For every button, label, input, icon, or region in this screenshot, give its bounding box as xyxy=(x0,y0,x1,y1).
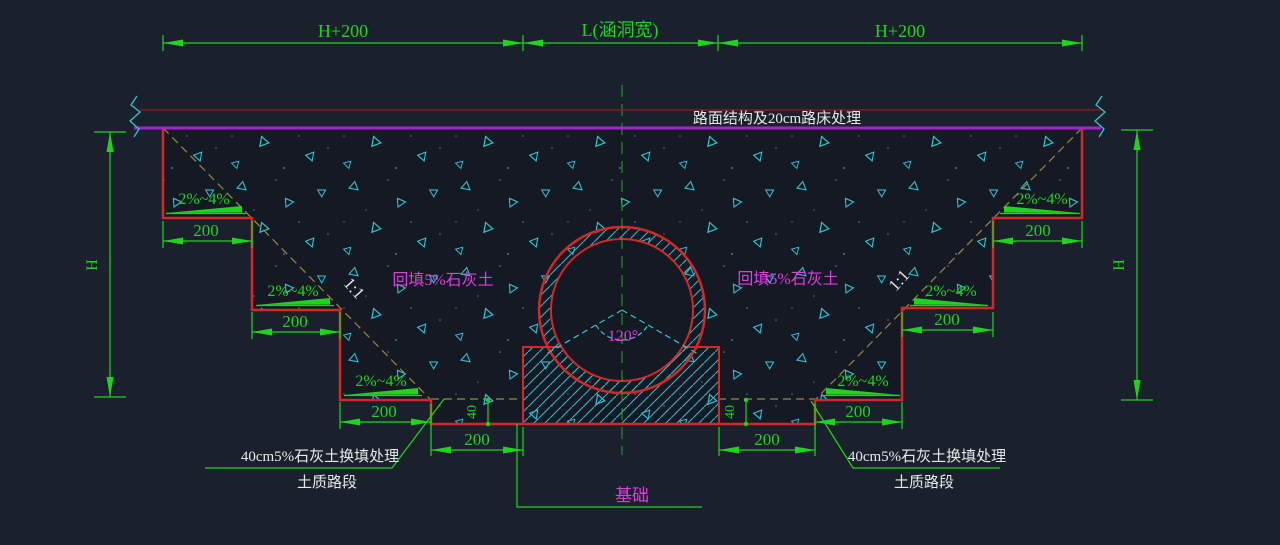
step-dim-right-1: 200 xyxy=(1025,221,1051,240)
step-dim-left-3: 200 xyxy=(371,402,397,421)
slope-grade-right-1: 2%~4% xyxy=(1016,191,1067,208)
height-dim-left-label: H xyxy=(84,259,101,271)
slope-grade-right-3: 2%~4% xyxy=(837,373,888,390)
slope-grade-left-1: 2%~4% xyxy=(178,191,229,208)
top-dim-left-label: H+200 xyxy=(318,21,368,41)
cad-canvas: 120° 路面结构及20cm路床处理 H+200 L(涵洞宽) H+200 xyxy=(0,0,1280,545)
step-dim-right-3: 200 xyxy=(845,402,871,421)
bottom-dim-right: 200 xyxy=(754,430,780,449)
replacement-note-left-line2: 土质路段 xyxy=(297,474,357,491)
step-dim-left-2: 200 xyxy=(282,312,308,331)
slope-grade-right-2: 2%~4% xyxy=(925,283,976,300)
step-dim-left-1: 200 xyxy=(193,221,219,240)
backfill-label-right: 回填5%石灰土 xyxy=(737,270,838,288)
slope-grade-left-3: 2%~4% xyxy=(355,373,406,390)
foundation-label: 基础 xyxy=(615,486,649,505)
step-dim-right-2: 200 xyxy=(934,310,960,329)
slope-grade-left-2: 2%~4% xyxy=(267,283,318,300)
depth-dim-left-label: 40 xyxy=(465,405,480,419)
road-note: 路面结构及20cm路床处理 xyxy=(693,110,861,127)
top-dim-center-label: L(涵洞宽) xyxy=(582,20,659,41)
backfill-label-left: 回填5%石灰土 xyxy=(392,271,493,289)
replacement-note-right-line1: 40cm5%石灰土换填处理 xyxy=(848,448,1006,465)
culvert-cross-section-drawing: 120° 路面结构及20cm路床处理 H+200 L(涵洞宽) H+200 xyxy=(0,0,1280,545)
angle-label: 120° xyxy=(608,328,638,345)
height-dim-right-label: H xyxy=(1111,259,1128,271)
replacement-note-right-line2: 土质路段 xyxy=(894,474,954,491)
bottom-dim-left: 200 xyxy=(464,430,490,449)
top-dim-right-label: H+200 xyxy=(875,21,925,41)
depth-dim-right-label: 40 xyxy=(723,405,738,419)
replacement-note-left-line1: 40cm5%石灰土换填处理 xyxy=(241,448,399,465)
